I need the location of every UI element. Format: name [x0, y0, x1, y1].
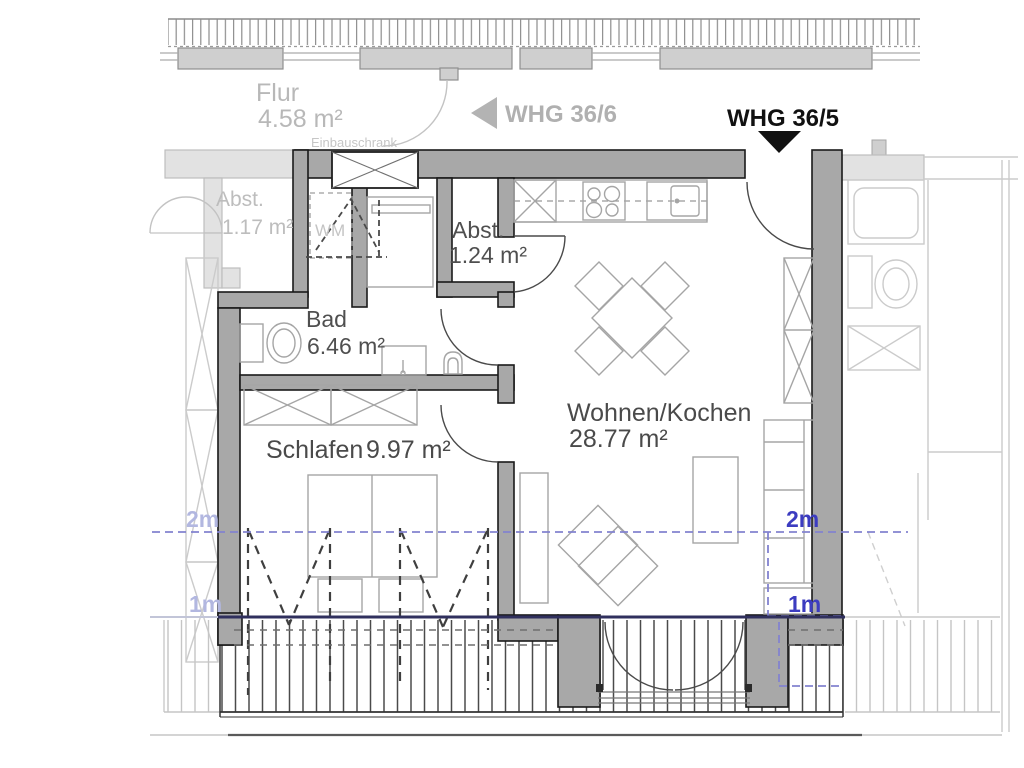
room-label-bad: Bad	[306, 306, 347, 332]
pier-balcony-door-left	[558, 615, 600, 707]
annotation-einbauschrank: Einbauschrank	[311, 135, 397, 150]
wall-wm-niche	[352, 178, 367, 307]
floor-plan-canvas: Flur 4.58 m² Einbauschrank WHG 36/6 WHG …	[0, 0, 1024, 768]
pier-bedroom-door	[498, 615, 558, 641]
toilet	[240, 323, 301, 363]
room-label-abst-outside: Abst.	[216, 188, 264, 211]
wall-jog	[218, 292, 308, 308]
wall-center-c	[498, 365, 514, 403]
bad-door-arc	[441, 309, 497, 365]
dining-chair	[575, 327, 623, 375]
entrance-door-arc	[747, 182, 814, 249]
room-label-schlafen: Schlafen	[266, 436, 363, 464]
annotation-wm: WM	[315, 221, 345, 240]
kitchen-sink	[647, 182, 707, 220]
wall-abst-left	[437, 178, 452, 297]
neighbour-balcony-railing-left	[164, 620, 220, 712]
height-marker-left-2m: 2m	[186, 506, 219, 532]
dining-chair	[641, 262, 689, 310]
room-area-bad: 6.46 m²	[307, 333, 385, 359]
pier-balcony-door-right	[746, 615, 788, 707]
hall-cabinet	[367, 197, 433, 287]
floor-plan-drawing: Flur 4.58 m² Einbauschrank WHG 36/6 WHG …	[0, 0, 1024, 768]
dining-chair	[641, 327, 689, 375]
upper-wall-segments	[178, 48, 872, 69]
bedroom-furniture	[244, 385, 437, 612]
dining-chair	[575, 262, 623, 310]
kitchen	[514, 180, 707, 222]
sideboard	[520, 473, 548, 603]
neighbour-cabinet	[848, 326, 920, 370]
washbasin	[382, 346, 426, 375]
wall-bad-schlafen	[240, 375, 514, 390]
wall-center-d	[498, 462, 514, 620]
bedroom-wardrobe	[244, 385, 417, 425]
dining-set	[575, 262, 689, 375]
side-table	[693, 457, 738, 543]
room-label-abst-inside: Abst.	[452, 217, 504, 243]
radiator	[444, 352, 462, 374]
room-area-schlafen: 9.97 m²	[366, 436, 451, 464]
tall-wardrobe	[784, 258, 814, 403]
corridor-door-jamb-right	[872, 140, 886, 155]
height-marker-right-1m: 1m	[788, 591, 821, 617]
wall-left-upper	[293, 150, 308, 297]
unit-label-whg-36-5: WHG 36/5	[727, 105, 839, 132]
neighbour-toilet	[848, 256, 917, 308]
neighbour-balcony-railing-right	[845, 620, 1000, 712]
corridor-door-jamb	[440, 68, 458, 80]
room-area-abst-outside: 1.17 m²	[222, 216, 293, 239]
neighbour-bathtub	[848, 180, 924, 244]
room-label-wohnen-kochen: Wohnen/Kochen	[567, 399, 751, 427]
height-marker-right-2m: 2m	[786, 506, 819, 532]
whg-36-6-arrow-icon	[471, 97, 497, 129]
unit-label-whg-36-6: WHG 36/6	[505, 101, 617, 128]
wall-right	[812, 150, 842, 620]
room-area-abst-inside: 1.24 m²	[449, 242, 527, 268]
dining-table	[592, 278, 672, 358]
room-area-flur: 4.58 m²	[258, 105, 343, 133]
room-area-wohnen-kochen: 28.77 m²	[569, 425, 668, 453]
bed	[308, 475, 437, 612]
wall-center-b	[498, 292, 514, 307]
whg-36-5-arrow-icon	[758, 131, 801, 153]
room-label-flur: Flur	[256, 79, 299, 107]
coffee-table	[558, 505, 657, 605]
built-in-closet	[332, 152, 418, 188]
height-marker-left-1m: 1m	[189, 591, 222, 617]
